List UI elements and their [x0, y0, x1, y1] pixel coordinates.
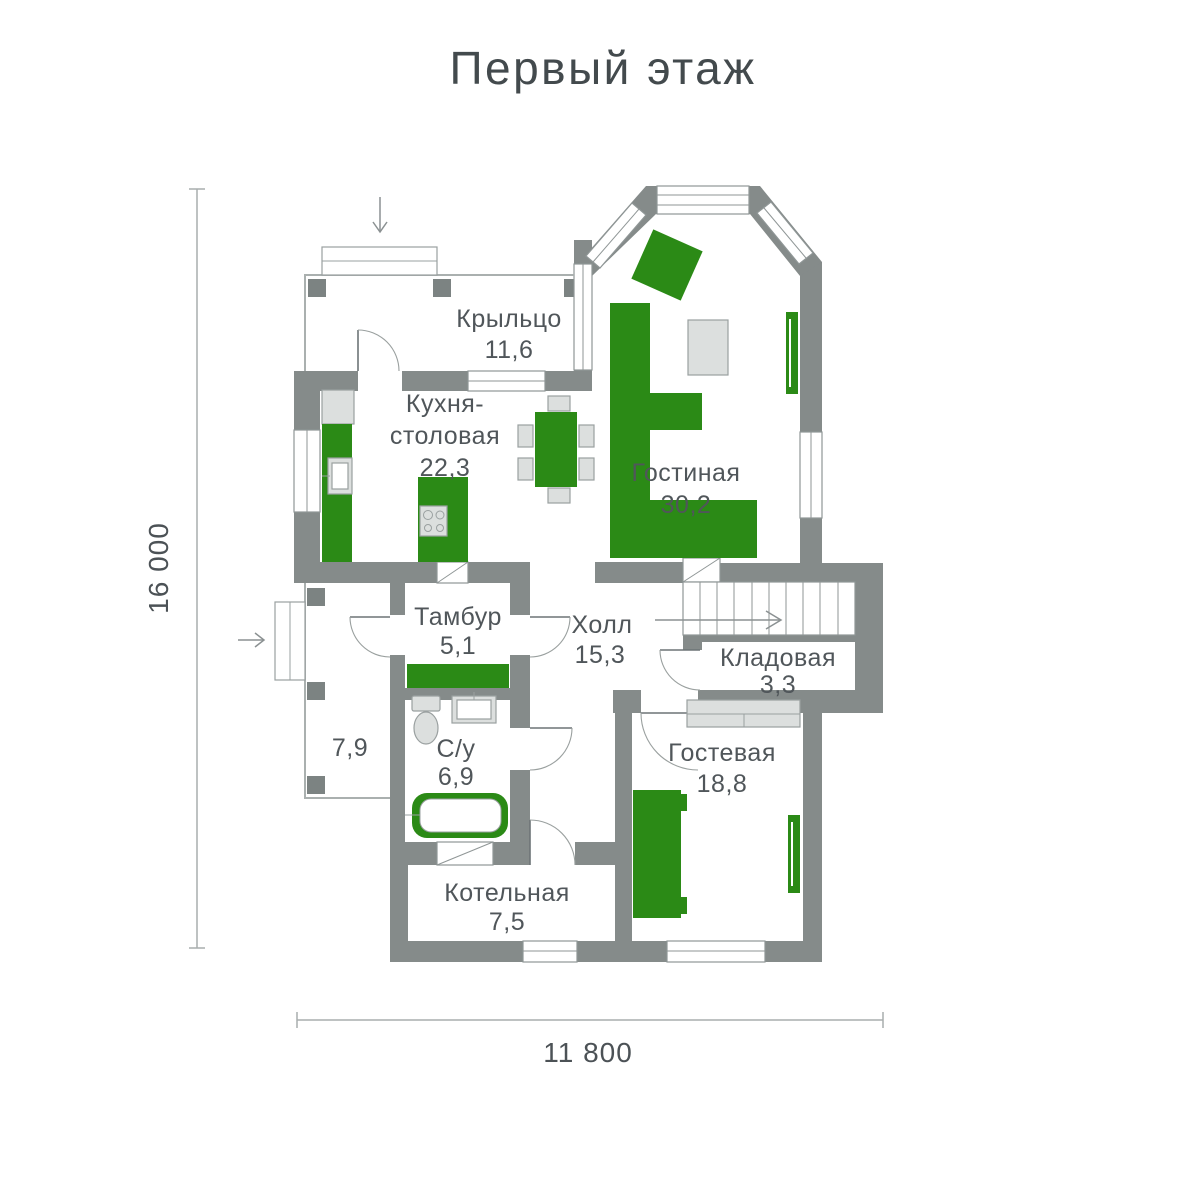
window-living-right: [800, 432, 822, 518]
door-porch-kitchen: [358, 330, 399, 371]
dimension-vertical: 16 000: [143, 189, 205, 948]
coffee-table: [688, 320, 728, 375]
label-terrace: 7,9: [332, 734, 368, 762]
svg-text:Крыльцо: Крыльцо: [456, 305, 562, 333]
terrace-pillar: [307, 682, 325, 700]
window-bay-left-angled: [586, 203, 646, 268]
label-bathroom: С/у 6,9: [437, 735, 476, 791]
svg-text:Холл: Холл: [572, 611, 633, 639]
floor-plan-page: Первый этаж: [0, 0, 1198, 1200]
svg-text:11,6: 11,6: [485, 336, 534, 364]
staircase: [655, 582, 855, 635]
svg-text:3,3: 3,3: [760, 671, 796, 699]
door-hall-bathroom: [530, 728, 572, 770]
dining-table: [535, 412, 577, 487]
label-vestibule: Тамбур 5,1: [414, 603, 502, 660]
window-living-left: [574, 264, 592, 370]
bed: [633, 790, 687, 918]
window-boiler: [523, 941, 577, 962]
door-vestibule-hall: [530, 617, 570, 657]
svg-text:столовая: столовая: [390, 422, 500, 450]
window-kitchen-left: [294, 430, 320, 512]
stove: [420, 506, 447, 536]
svg-text:Котельная: Котельная: [444, 879, 570, 907]
door-hall-storage: [660, 650, 700, 690]
label-hall: Холл 15,3: [572, 611, 633, 669]
label-porch: Крыльцо 11,6: [456, 305, 562, 364]
armchair: [631, 229, 702, 300]
tv-guest: [788, 815, 800, 893]
svg-text:7,9: 7,9: [332, 734, 368, 762]
corner-sofa: [610, 303, 757, 558]
vent-shaft-kitchen: [437, 562, 468, 583]
terrace-pillar: [307, 588, 325, 606]
svg-text:7,5: 7,5: [489, 908, 525, 936]
svg-text:Тамбур: Тамбур: [414, 603, 502, 631]
terrace-pillar: [307, 776, 325, 794]
svg-text:5,1: 5,1: [440, 632, 476, 660]
guest-wardrobe: [687, 700, 800, 727]
window-guest: [667, 941, 765, 962]
label-boiler: Котельная 7,5: [444, 879, 570, 936]
svg-text:Кладовая: Кладовая: [720, 644, 836, 672]
svg-text:С/у: С/у: [437, 735, 476, 763]
svg-text:Кухня-: Кухня-: [406, 390, 484, 418]
bathroom-sink: [452, 692, 496, 723]
svg-text:Гостиная: Гостиная: [632, 459, 741, 487]
dimension-height-value: 16 000: [143, 522, 174, 614]
dimension-width-value: 11 800: [543, 1037, 633, 1068]
door-terrace-vestibule: [350, 617, 390, 657]
entrance-arrow-left: [238, 633, 264, 647]
porch-pillar: [308, 279, 326, 297]
bathtub: [405, 793, 508, 838]
entrance-arrow-top: [373, 197, 387, 232]
vestibule-wardrobe: [407, 664, 509, 688]
svg-text:30,2: 30,2: [661, 491, 712, 519]
vent-shaft-bathroom: [437, 842, 493, 865]
dimension-horizontal: 11 800: [297, 1012, 883, 1068]
svg-text:22,3: 22,3: [420, 454, 471, 482]
floor-plan-drawing: Первый этаж: [0, 0, 1198, 1200]
terrace-steps: [275, 602, 305, 680]
svg-text:6,9: 6,9: [438, 763, 474, 791]
door-hall-boiler: [530, 820, 575, 865]
svg-text:15,3: 15,3: [575, 641, 626, 669]
svg-text:Гостевая: Гостевая: [668, 739, 776, 767]
window-bay-top: [657, 186, 749, 214]
fridge: [322, 390, 354, 424]
vent-shaft-stairs: [683, 558, 720, 582]
porch-pillar: [433, 279, 451, 297]
porch-steps: [322, 247, 437, 275]
window-porch-kitchen: [468, 371, 545, 391]
tv-living: [786, 312, 798, 394]
page-title: Первый этаж: [449, 42, 756, 94]
svg-text:18,8: 18,8: [697, 770, 748, 798]
label-kitchen-dining: Кухня- столовая 22,3: [390, 390, 500, 482]
